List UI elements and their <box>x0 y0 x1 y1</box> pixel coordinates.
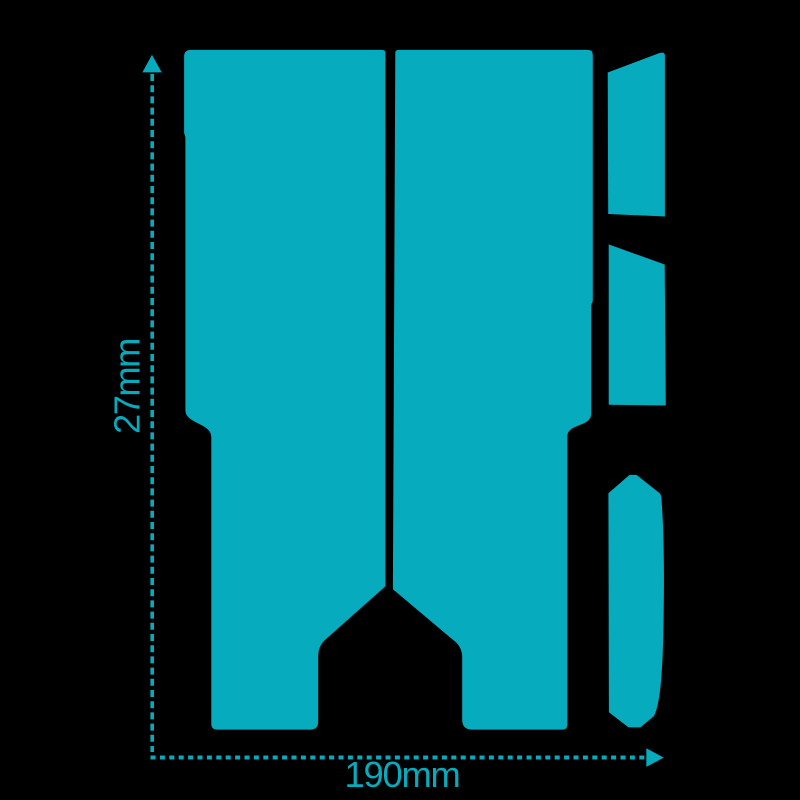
svg-text:27mm: 27mm <box>107 339 148 434</box>
svg-text:190mm: 190mm <box>344 754 459 795</box>
